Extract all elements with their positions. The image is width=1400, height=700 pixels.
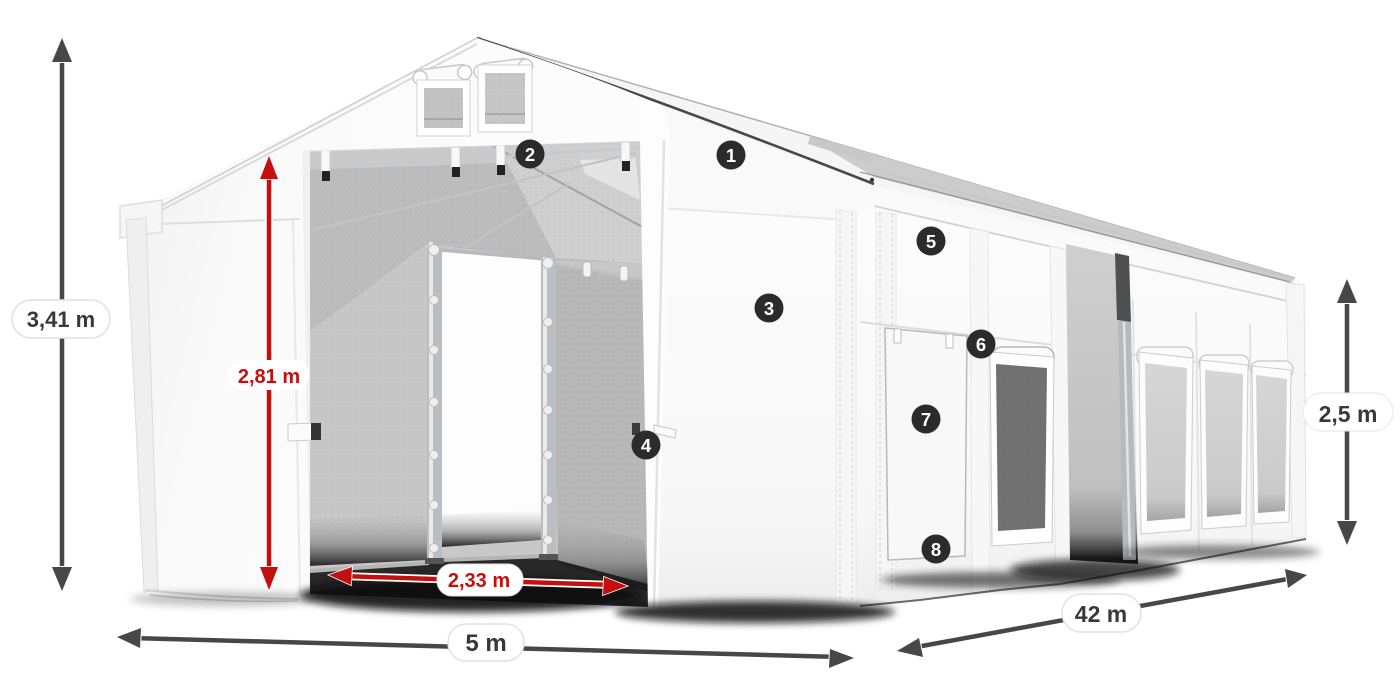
svg-text:3,41 m: 3,41 m: [27, 307, 96, 332]
svg-text:2: 2: [525, 144, 535, 165]
svg-text:4: 4: [641, 435, 652, 456]
svg-text:7: 7: [921, 409, 931, 430]
svg-text:2,33 m: 2,33 m: [448, 570, 510, 592]
svg-text:6: 6: [976, 334, 986, 355]
svg-text:8: 8: [931, 539, 941, 560]
svg-text:2,81 m: 2,81 m: [238, 366, 300, 388]
svg-text:2,5 m: 2,5 m: [1319, 401, 1378, 427]
svg-text:5: 5: [926, 231, 936, 252]
svg-text:42 m: 42 m: [1075, 601, 1127, 627]
svg-text:1: 1: [726, 145, 736, 166]
svg-text:5 m: 5 m: [465, 630, 506, 657]
svg-text:3: 3: [764, 298, 774, 319]
